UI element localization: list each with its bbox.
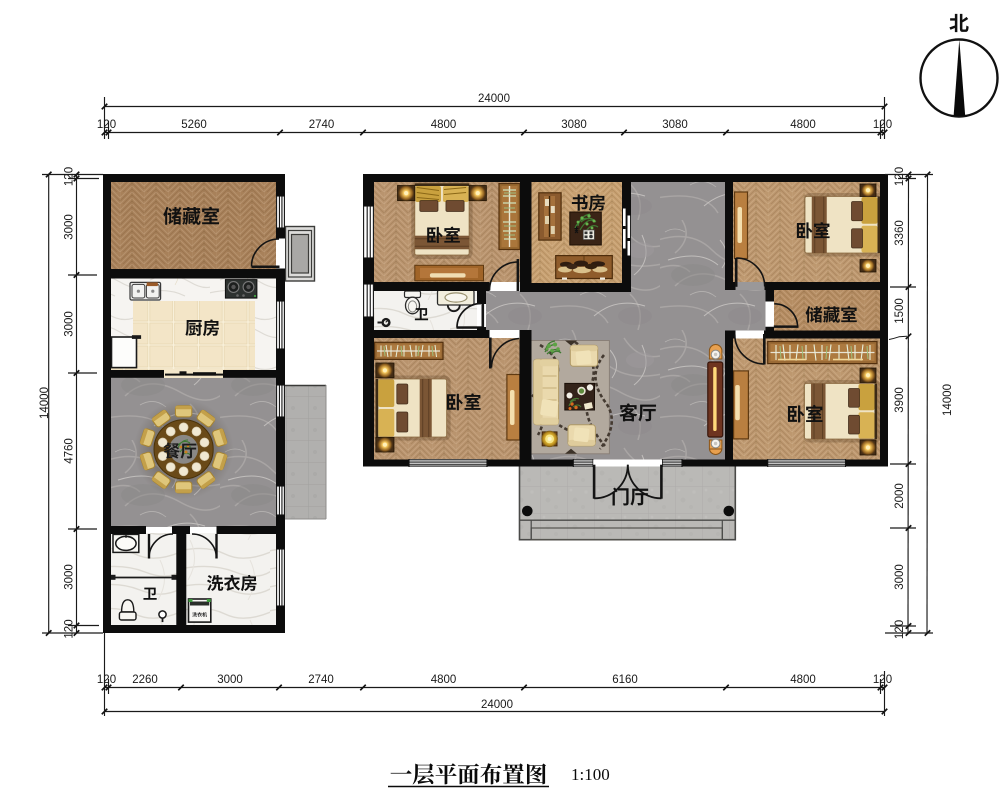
svg-text:120: 120 xyxy=(873,119,892,131)
svg-text:3080: 3080 xyxy=(662,119,688,131)
svg-text:4800: 4800 xyxy=(790,674,816,686)
svg-text:120: 120 xyxy=(64,167,76,186)
svg-text:4760: 4760 xyxy=(64,438,76,464)
svg-text:1500: 1500 xyxy=(894,298,906,324)
svg-text:120: 120 xyxy=(894,620,906,639)
svg-text:24000: 24000 xyxy=(478,93,510,105)
svg-text:6160: 6160 xyxy=(612,674,638,686)
svg-text:2260: 2260 xyxy=(132,674,158,686)
svg-text:3000: 3000 xyxy=(217,674,243,686)
svg-text:1:100: 1:100 xyxy=(571,765,610,784)
svg-text:120: 120 xyxy=(97,119,116,131)
svg-text:120: 120 xyxy=(894,167,906,186)
svg-text:4800: 4800 xyxy=(431,674,457,686)
svg-text:24000: 24000 xyxy=(481,699,513,711)
svg-text:3360: 3360 xyxy=(894,220,906,246)
svg-text:2740: 2740 xyxy=(309,119,335,131)
svg-text:120: 120 xyxy=(64,619,76,638)
svg-text:14000: 14000 xyxy=(39,387,51,419)
svg-text:4800: 4800 xyxy=(431,119,457,131)
svg-text:5260: 5260 xyxy=(181,119,207,131)
svg-text:120: 120 xyxy=(97,674,116,686)
svg-text:4800: 4800 xyxy=(790,119,816,131)
svg-text:2000: 2000 xyxy=(894,483,906,509)
svg-text:3000: 3000 xyxy=(894,564,906,590)
svg-text:3000: 3000 xyxy=(64,311,76,337)
svg-text:2740: 2740 xyxy=(308,674,334,686)
svg-text:3900: 3900 xyxy=(894,387,906,413)
svg-text:3080: 3080 xyxy=(561,119,587,131)
svg-text:120: 120 xyxy=(873,674,892,686)
svg-text:3000: 3000 xyxy=(64,564,76,590)
svg-text:3000: 3000 xyxy=(64,214,76,240)
svg-text:14000: 14000 xyxy=(942,384,954,416)
